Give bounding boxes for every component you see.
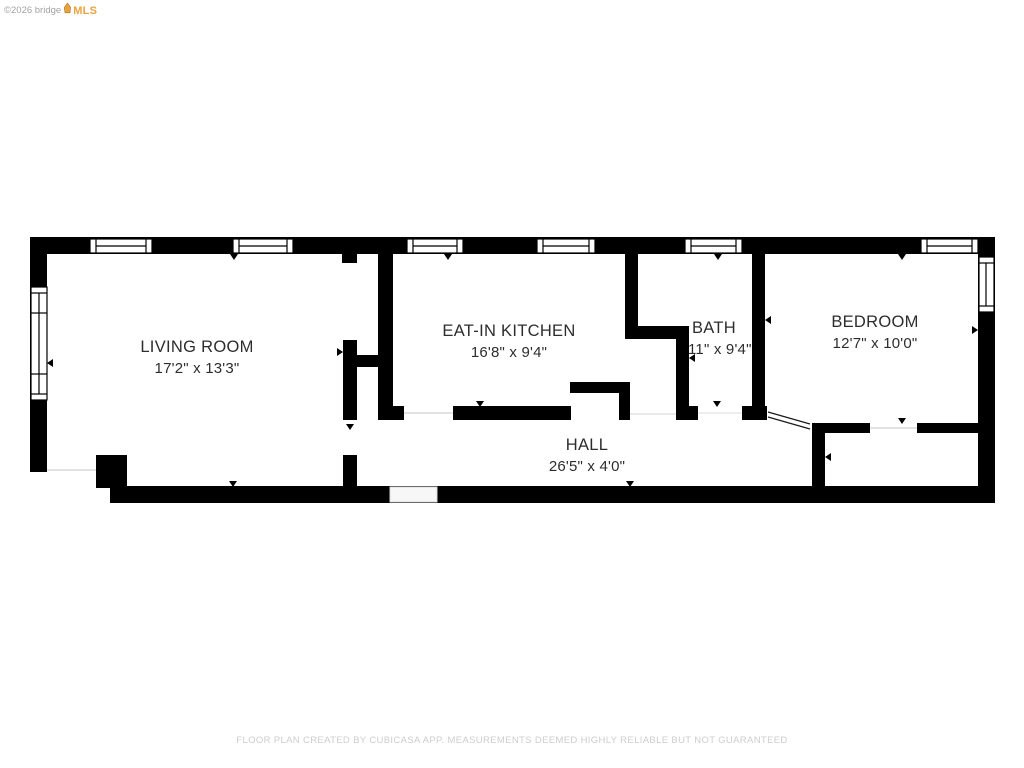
window xyxy=(31,287,47,400)
room-label-bath: BATH 5'11" x 9'4" xyxy=(676,318,751,360)
room-label-living-room: LIVING ROOM 17'2" x 13'3" xyxy=(140,337,253,379)
window xyxy=(921,239,978,253)
room-name: EAT-IN KITCHEN xyxy=(442,321,575,342)
window xyxy=(233,239,293,253)
room-dimensions: 17'2" x 13'3" xyxy=(140,358,253,379)
room-dimensions: 5'11" x 9'4" xyxy=(676,339,751,360)
room-name: BEDROOM xyxy=(831,312,918,333)
room-name: LIVING ROOM xyxy=(140,337,253,358)
window xyxy=(979,257,994,312)
window xyxy=(90,239,152,253)
room-name: BATH xyxy=(676,318,751,339)
room-label-eat-in-kitchen: EAT-IN KITCHEN 16'8" x 9'4" xyxy=(442,321,575,363)
watermark: ©2026 bridgeMLS xyxy=(4,3,97,17)
room-label-bedroom: BEDROOM 12'7" x 10'0" xyxy=(831,312,918,354)
door-openings xyxy=(47,413,917,502)
footer-disclaimer: FLOOR PLAN CREATED BY CUBICASA APP. MEAS… xyxy=(0,735,1024,746)
window xyxy=(685,239,742,253)
room-label-hall: HALL 26'5" x 4'0" xyxy=(549,435,625,477)
floor-plan-page: ©2026 bridgeMLS LIVING ROOM 17'2" x 13'3… xyxy=(0,0,1024,768)
room-dimensions: 16'8" x 9'4" xyxy=(442,342,575,363)
door-swing-lines xyxy=(768,412,810,429)
floor-plan-drawing xyxy=(0,0,1024,768)
room-dimensions: 26'5" x 4'0" xyxy=(549,456,625,477)
room-dimensions: 12'7" x 10'0" xyxy=(831,333,918,354)
flame-icon xyxy=(63,3,72,16)
window xyxy=(407,239,463,253)
watermark-brand: MLS xyxy=(73,5,97,17)
window xyxy=(537,239,595,253)
watermark-copyright: ©2026 bridge xyxy=(4,5,61,17)
room-name: HALL xyxy=(549,435,625,456)
